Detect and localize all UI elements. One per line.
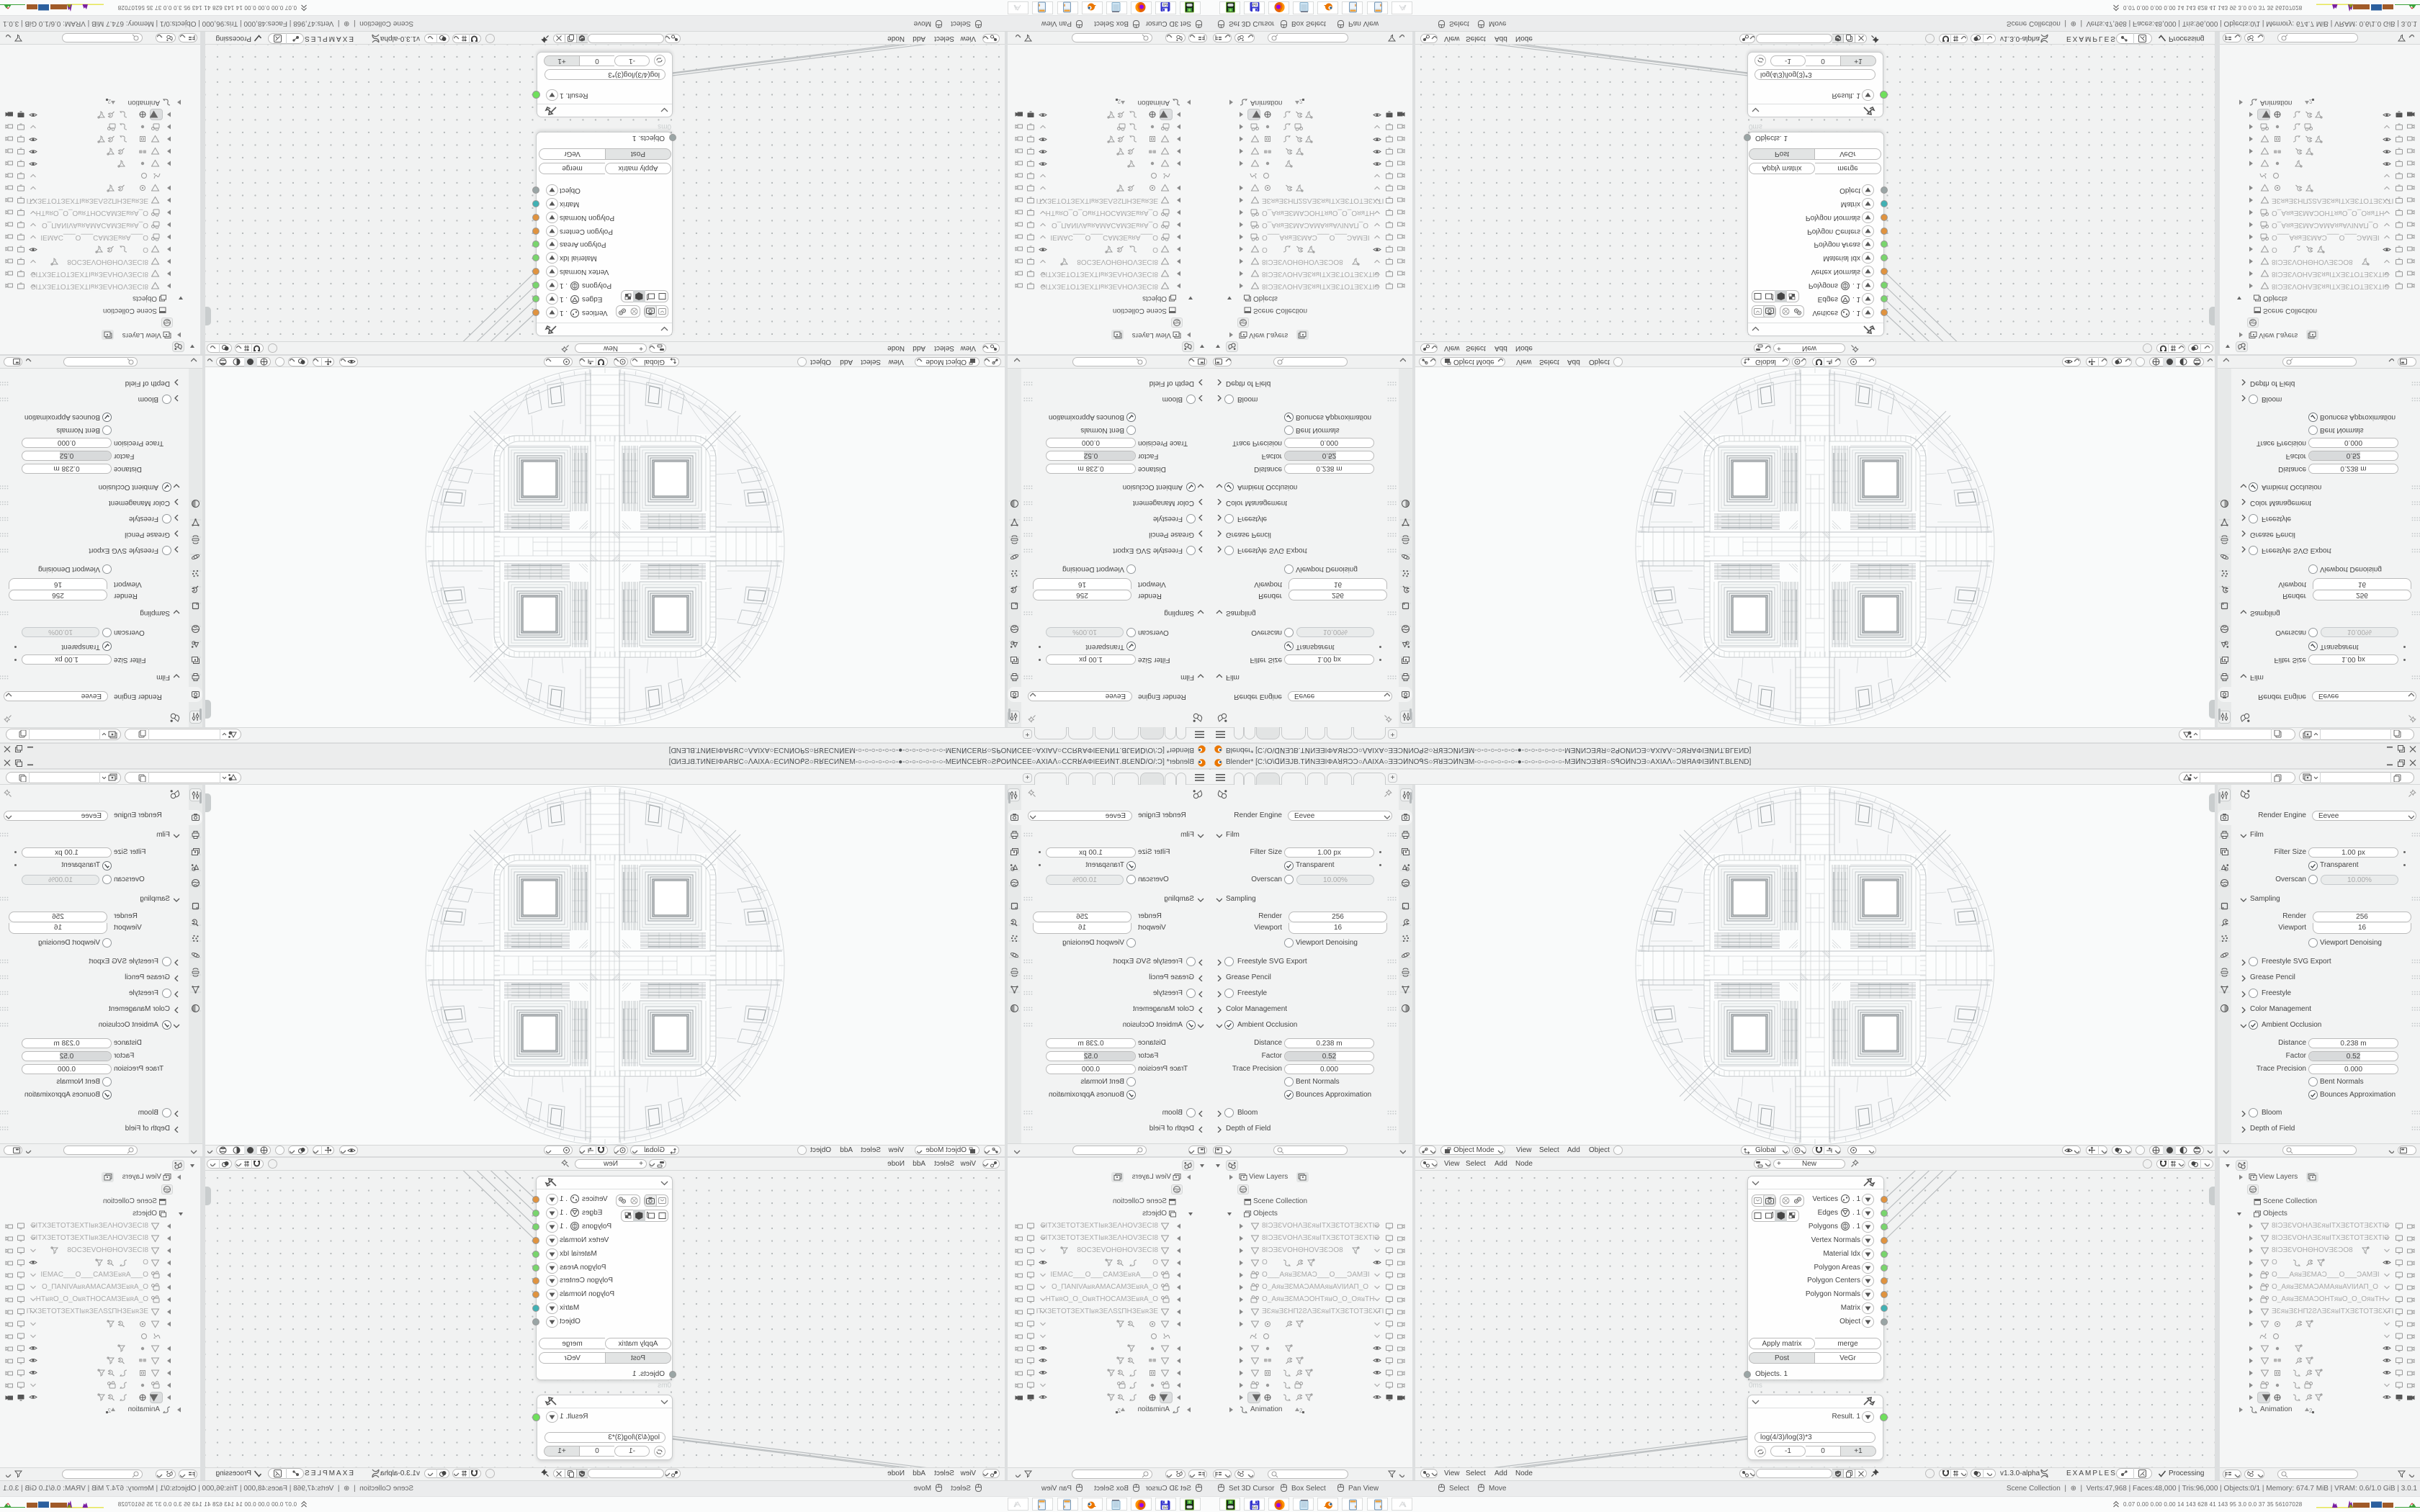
svg-text:64: 64	[1252, 1506, 1257, 1511]
svg-text:64: 64	[1252, 2, 1257, 6]
svg-text:64: 64	[1163, 1506, 1168, 1511]
svg-text:64: 64	[1163, 2, 1168, 6]
